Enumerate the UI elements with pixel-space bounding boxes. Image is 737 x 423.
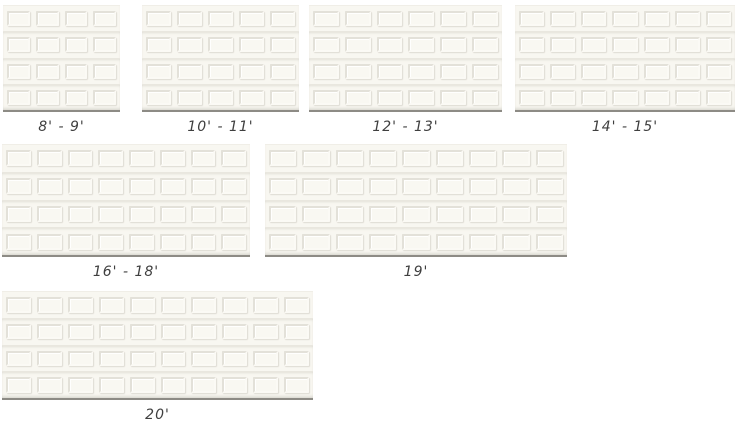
door-size-label: 10' - 11': [142, 119, 299, 135]
door-panel: [706, 37, 731, 52]
door-section: [309, 84, 502, 110]
door-panel: [402, 178, 429, 194]
door-section: [265, 227, 567, 255]
door-panel: [65, 64, 88, 79]
door-panel: [191, 150, 216, 166]
door-section: [309, 31, 502, 57]
door-size-label: 14' - 15': [515, 119, 735, 135]
door-panel: [37, 351, 62, 366]
door-panel: [472, 90, 498, 105]
door-panel: [502, 178, 529, 194]
door-panel: [436, 178, 463, 194]
door-panel: [408, 64, 434, 79]
door-section: [309, 58, 502, 84]
door-panel: [6, 351, 31, 366]
door-panel: [675, 90, 700, 105]
door-panel: [253, 351, 278, 366]
door-panel: [98, 206, 123, 222]
door-panel: [302, 178, 329, 194]
door-panel: [221, 206, 246, 222]
door-panel: [550, 64, 575, 79]
door-panel: [68, 234, 93, 250]
door-panel: [302, 234, 329, 250]
door-panel: [581, 11, 606, 26]
door-panel: [37, 297, 62, 312]
door-section: [3, 58, 120, 84]
door-panel: [377, 90, 403, 105]
door-panel: [93, 90, 116, 105]
door-panel: [68, 324, 93, 339]
door-panel: [129, 234, 154, 250]
door-panel: [161, 351, 186, 366]
door-panel: [99, 297, 124, 312]
door-panel: [345, 64, 371, 79]
door-panel: [472, 64, 498, 79]
door-panel: [68, 351, 93, 366]
door-panel: [536, 206, 563, 222]
door-panel: [191, 351, 216, 366]
door-panel: [239, 64, 264, 79]
door-section: [142, 31, 299, 57]
door-section: [142, 84, 299, 110]
door-panel: [68, 150, 93, 166]
door-section: [2, 318, 313, 345]
door-panel: [313, 64, 339, 79]
door-panel: [7, 11, 30, 26]
door-panel: [191, 206, 216, 222]
door-panel: [98, 150, 123, 166]
door-panel: [99, 324, 124, 339]
door-section: [142, 58, 299, 84]
door-panel: [161, 324, 186, 339]
door-panel: [675, 37, 700, 52]
door-panel: [269, 234, 296, 250]
door-panel: [253, 377, 278, 392]
door-panel: [369, 234, 396, 250]
door-section: [3, 31, 120, 57]
door-section: [2, 145, 250, 172]
door-panel: [221, 178, 246, 194]
door-section: [265, 200, 567, 228]
door-panel: [550, 90, 575, 105]
door-panel: [177, 11, 202, 26]
door-panel: [502, 150, 529, 166]
door-section: [265, 145, 567, 172]
door-width-selector: 8' - 9' 10' - 11' 12' - 13' 14' - 15' 16…: [0, 0, 737, 423]
door-panel: [284, 324, 309, 339]
door-panel: [93, 37, 116, 52]
door-panel: [519, 37, 544, 52]
door-panel: [377, 64, 403, 79]
door-panel: [469, 234, 496, 250]
door-panel: [581, 90, 606, 105]
door-panel: [36, 90, 59, 105]
door-panel: [345, 11, 371, 26]
door-size-label: 8' - 9': [3, 119, 120, 135]
door-panel: [284, 297, 309, 312]
door-panel: [644, 64, 669, 79]
door-panel: [284, 377, 309, 392]
door-section: [2, 172, 250, 200]
door-panel: [612, 11, 637, 26]
door-panel: [612, 37, 637, 52]
door-panel: [37, 377, 62, 392]
door-panel: [161, 297, 186, 312]
door-panel: [436, 150, 463, 166]
door-panel: [208, 37, 233, 52]
door-panel: [37, 150, 62, 166]
door-panel: [129, 178, 154, 194]
door-panel: [37, 324, 62, 339]
door-panel: [377, 37, 403, 52]
door-panel: [706, 11, 731, 26]
door-panel: [644, 37, 669, 52]
door-panel: [536, 178, 563, 194]
door-section: [142, 6, 299, 31]
door-panel: [191, 324, 216, 339]
door-panel: [336, 150, 363, 166]
door-section: [2, 371, 313, 398]
door-section: [265, 172, 567, 200]
door-image-10-11[interactable]: [142, 5, 299, 112]
door-panel: [36, 11, 59, 26]
door-panel: [706, 90, 731, 105]
door-panel: [345, 37, 371, 52]
door-panel: [536, 234, 563, 250]
door-panel: [408, 90, 434, 105]
door-section: [515, 58, 735, 84]
door-panel: [519, 11, 544, 26]
door-panel: [130, 377, 155, 392]
door-panel: [336, 206, 363, 222]
door-panel: [502, 234, 529, 250]
door-panel: [440, 37, 466, 52]
door-option-20[interactable]: 20': [2, 291, 313, 423]
door-panel: [146, 64, 171, 79]
door-panel: [270, 37, 295, 52]
door-panel: [6, 234, 31, 250]
door-panel: [612, 64, 637, 79]
door-panel: [6, 377, 31, 392]
door-panel: [302, 206, 329, 222]
door-panel: [402, 150, 429, 166]
door-panel: [440, 90, 466, 105]
door-panel: [519, 90, 544, 105]
door-panel: [130, 351, 155, 366]
door-panel: [269, 178, 296, 194]
door-panel: [93, 11, 116, 26]
door-panel: [222, 297, 247, 312]
door-image-14-15[interactable]: [515, 5, 735, 112]
door-panel: [222, 377, 247, 392]
door-panel: [436, 234, 463, 250]
door-panel: [302, 150, 329, 166]
door-panel: [68, 377, 93, 392]
door-option-10-11[interactable]: 10' - 11': [142, 5, 299, 135]
door-panel: [65, 11, 88, 26]
door-panel: [146, 37, 171, 52]
door-panel: [130, 297, 155, 312]
door-panel: [253, 324, 278, 339]
door-panel: [191, 297, 216, 312]
door-image-16-18[interactable]: [2, 144, 250, 257]
door-panel: [550, 11, 575, 26]
door-panel: [36, 37, 59, 52]
door-panel: [161, 377, 186, 392]
door-panel: [402, 206, 429, 222]
door-panel: [65, 37, 88, 52]
door-panel: [6, 297, 31, 312]
door-panel: [270, 90, 295, 105]
door-panel: [99, 377, 124, 392]
door-panel: [369, 206, 396, 222]
door-section: [2, 227, 250, 255]
door-option-19[interactable]: 19': [265, 144, 567, 280]
door-panel: [644, 90, 669, 105]
door-panel: [270, 11, 295, 26]
door-panel: [469, 178, 496, 194]
door-panel: [581, 64, 606, 79]
door-panel: [6, 150, 31, 166]
door-panel: [284, 351, 309, 366]
door-panel: [68, 178, 93, 194]
door-panel: [472, 37, 498, 52]
door-panel: [6, 324, 31, 339]
door-panel: [519, 64, 544, 79]
door-panel: [7, 37, 30, 52]
door-option-16-18[interactable]: 16' - 18': [2, 144, 250, 280]
door-panel: [706, 64, 731, 79]
door-panel: [239, 90, 264, 105]
door-panel: [191, 178, 216, 194]
door-panel: [208, 90, 233, 105]
door-panel: [68, 206, 93, 222]
door-panel: [37, 178, 62, 194]
door-panel: [408, 37, 434, 52]
door-panel: [98, 234, 123, 250]
door-panel: [436, 206, 463, 222]
door-panel: [7, 90, 30, 105]
door-panel: [408, 11, 434, 26]
door-option-12-13[interactable]: 12' - 13': [309, 5, 502, 135]
door-panel: [402, 234, 429, 250]
door-panel: [472, 11, 498, 26]
door-panel: [222, 324, 247, 339]
door-panel: [313, 90, 339, 105]
door-section: [3, 84, 120, 110]
door-panel: [377, 11, 403, 26]
door-panel: [191, 234, 216, 250]
door-panel: [675, 11, 700, 26]
door-size-label: 12' - 13': [309, 119, 502, 135]
door-image-8-9[interactable]: [3, 5, 120, 112]
door-panel: [93, 64, 116, 79]
door-panel: [313, 11, 339, 26]
door-panel: [581, 37, 606, 52]
door-panel: [99, 351, 124, 366]
door-panel: [550, 37, 575, 52]
door-panel: [253, 297, 278, 312]
door-panel: [469, 150, 496, 166]
door-panel: [36, 64, 59, 79]
door-panel: [37, 206, 62, 222]
door-panel: [160, 150, 185, 166]
door-image-20[interactable]: [2, 291, 313, 400]
door-panel: [612, 90, 637, 105]
door-panel: [160, 234, 185, 250]
door-section: [2, 292, 313, 318]
door-panel: [469, 206, 496, 222]
door-panel: [208, 64, 233, 79]
door-panel: [160, 206, 185, 222]
door-image-12-13[interactable]: [309, 5, 502, 112]
door-panel: [160, 178, 185, 194]
door-panel: [369, 150, 396, 166]
door-panel: [146, 11, 171, 26]
door-panel: [270, 64, 295, 79]
door-panel: [313, 37, 339, 52]
door-panel: [68, 297, 93, 312]
door-panel: [6, 178, 31, 194]
door-panel: [502, 206, 529, 222]
door-panel: [644, 11, 669, 26]
door-section: [3, 6, 120, 31]
door-section: [515, 31, 735, 57]
door-panel: [65, 90, 88, 105]
door-panel: [369, 178, 396, 194]
door-panel: [177, 64, 202, 79]
door-panel: [221, 234, 246, 250]
door-panel: [440, 64, 466, 79]
door-panel: [208, 11, 233, 26]
door-panel: [7, 64, 30, 79]
door-panel: [222, 351, 247, 366]
door-panel: [239, 11, 264, 26]
door-panel: [177, 90, 202, 105]
door-panel: [37, 234, 62, 250]
door-panel: [177, 37, 202, 52]
door-panel: [98, 178, 123, 194]
door-size-label: 16' - 18': [2, 264, 250, 280]
door-section: [515, 6, 735, 31]
door-panel: [129, 150, 154, 166]
door-panel: [269, 150, 296, 166]
door-option-14-15[interactable]: 14' - 15': [515, 5, 735, 135]
door-size-label: 19': [265, 264, 567, 280]
door-image-19[interactable]: [265, 144, 567, 257]
door-panel: [440, 11, 466, 26]
door-panel: [146, 90, 171, 105]
door-panel: [130, 324, 155, 339]
door-panel: [536, 150, 563, 166]
door-panel: [345, 90, 371, 105]
door-panel: [675, 64, 700, 79]
door-size-label: 20': [2, 407, 313, 423]
door-panel: [6, 206, 31, 222]
door-section: [2, 345, 313, 372]
door-panel: [239, 37, 264, 52]
door-panel: [269, 206, 296, 222]
door-panel: [336, 178, 363, 194]
door-option-8-9[interactable]: 8' - 9': [3, 5, 120, 135]
door-section: [309, 6, 502, 31]
door-panel: [336, 234, 363, 250]
door-panel: [129, 206, 154, 222]
door-panel: [191, 377, 216, 392]
door-section: [2, 200, 250, 228]
door-section: [515, 84, 735, 110]
door-panel: [221, 150, 246, 166]
